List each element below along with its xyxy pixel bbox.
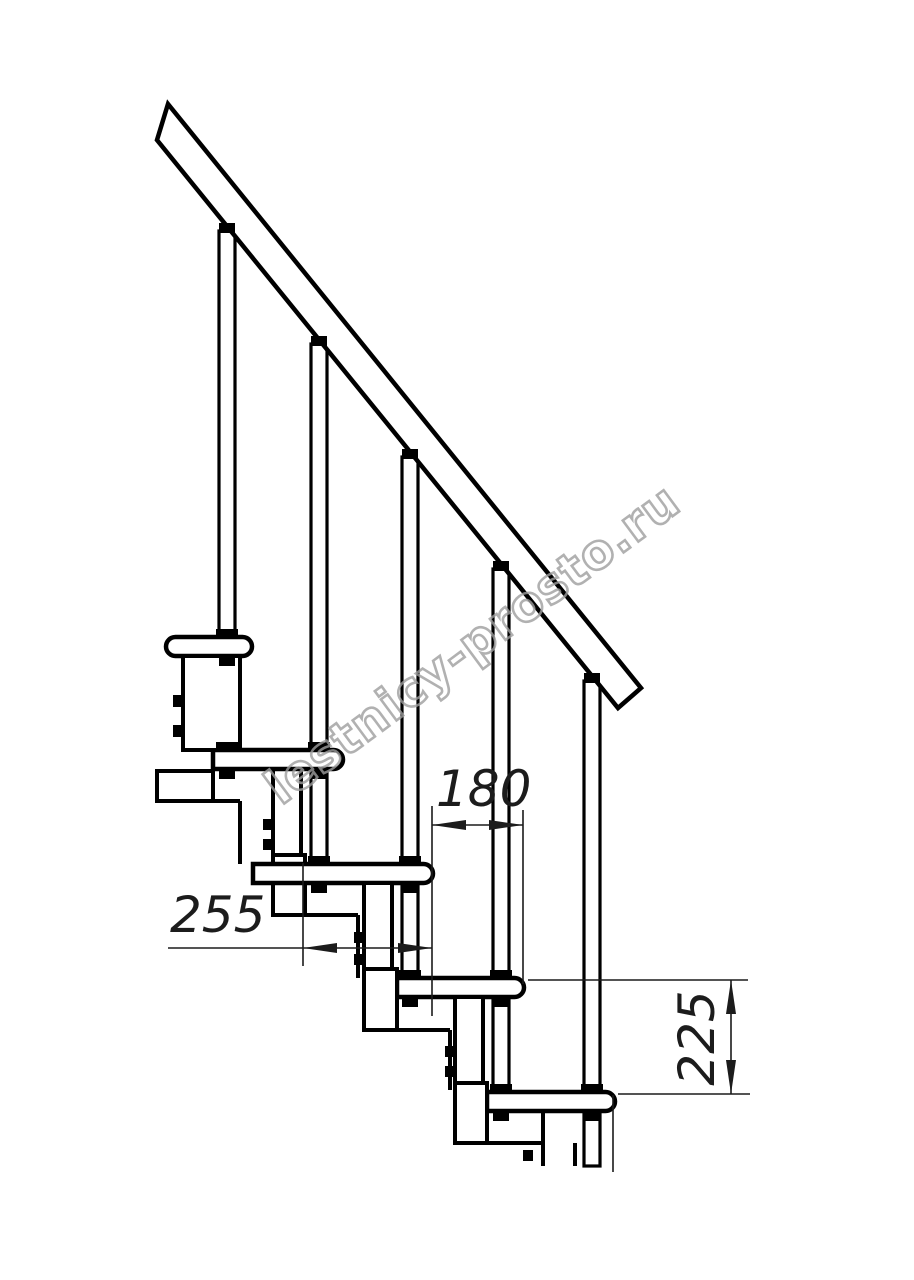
tread-5 xyxy=(487,1092,615,1111)
bolt-icon xyxy=(173,725,183,737)
collar xyxy=(581,1084,603,1092)
rail-collar xyxy=(493,561,509,571)
collar xyxy=(308,856,330,864)
arrow-left-icon xyxy=(432,820,466,830)
rail-collar xyxy=(584,673,600,683)
rail-collar xyxy=(219,223,235,233)
rail-collar xyxy=(402,449,418,459)
collar xyxy=(490,970,512,978)
bolt-icon xyxy=(263,839,273,850)
arrow-up-icon xyxy=(726,980,736,1014)
rail-collar xyxy=(311,336,327,346)
collar xyxy=(490,1084,512,1092)
staircase-technical-drawing: 180 255 225 lestnicy-prosto.ru xyxy=(0,0,914,1280)
collar xyxy=(216,629,238,637)
dimension-255-label: 255 xyxy=(170,886,265,944)
arrow-left-icon xyxy=(303,943,337,953)
spine-bracket-4 xyxy=(455,1083,487,1143)
bolt-icon xyxy=(354,954,364,965)
nut xyxy=(493,1113,509,1121)
collar xyxy=(399,970,421,978)
spine-module-3 xyxy=(364,883,392,969)
spine-module-1 xyxy=(183,656,240,750)
nut xyxy=(402,885,418,893)
collar xyxy=(216,742,238,750)
nut xyxy=(493,999,509,1007)
dimension-225-label: 225 xyxy=(668,990,726,1085)
bolt-icon xyxy=(445,1066,455,1077)
bolt-icon xyxy=(354,932,364,943)
spine-bracket-1 xyxy=(157,771,213,801)
bolt-icon xyxy=(173,695,183,707)
tread-4 xyxy=(397,978,524,997)
spine-bracket-3 xyxy=(364,969,397,1030)
bolt-icon xyxy=(445,1046,455,1057)
spine-module-4 xyxy=(455,997,483,1083)
nut xyxy=(584,1113,600,1121)
nut xyxy=(402,999,418,1007)
page: { "drawing": { "kind": "modular-staircas… xyxy=(0,0,914,1280)
nut xyxy=(219,771,235,779)
bolt-icon xyxy=(523,1150,533,1161)
nut xyxy=(219,658,235,666)
tread-3 xyxy=(253,864,433,883)
nut xyxy=(311,885,327,893)
tread-1 xyxy=(166,637,252,656)
bolt-icon xyxy=(263,819,273,830)
spine-link-1 xyxy=(157,801,240,864)
dimension-180-label: 180 xyxy=(436,760,531,818)
spine-link-3 xyxy=(364,1030,450,1090)
arrow-down-icon xyxy=(726,1060,736,1094)
dimension-225: 225 xyxy=(528,980,750,1172)
collar xyxy=(399,856,421,864)
